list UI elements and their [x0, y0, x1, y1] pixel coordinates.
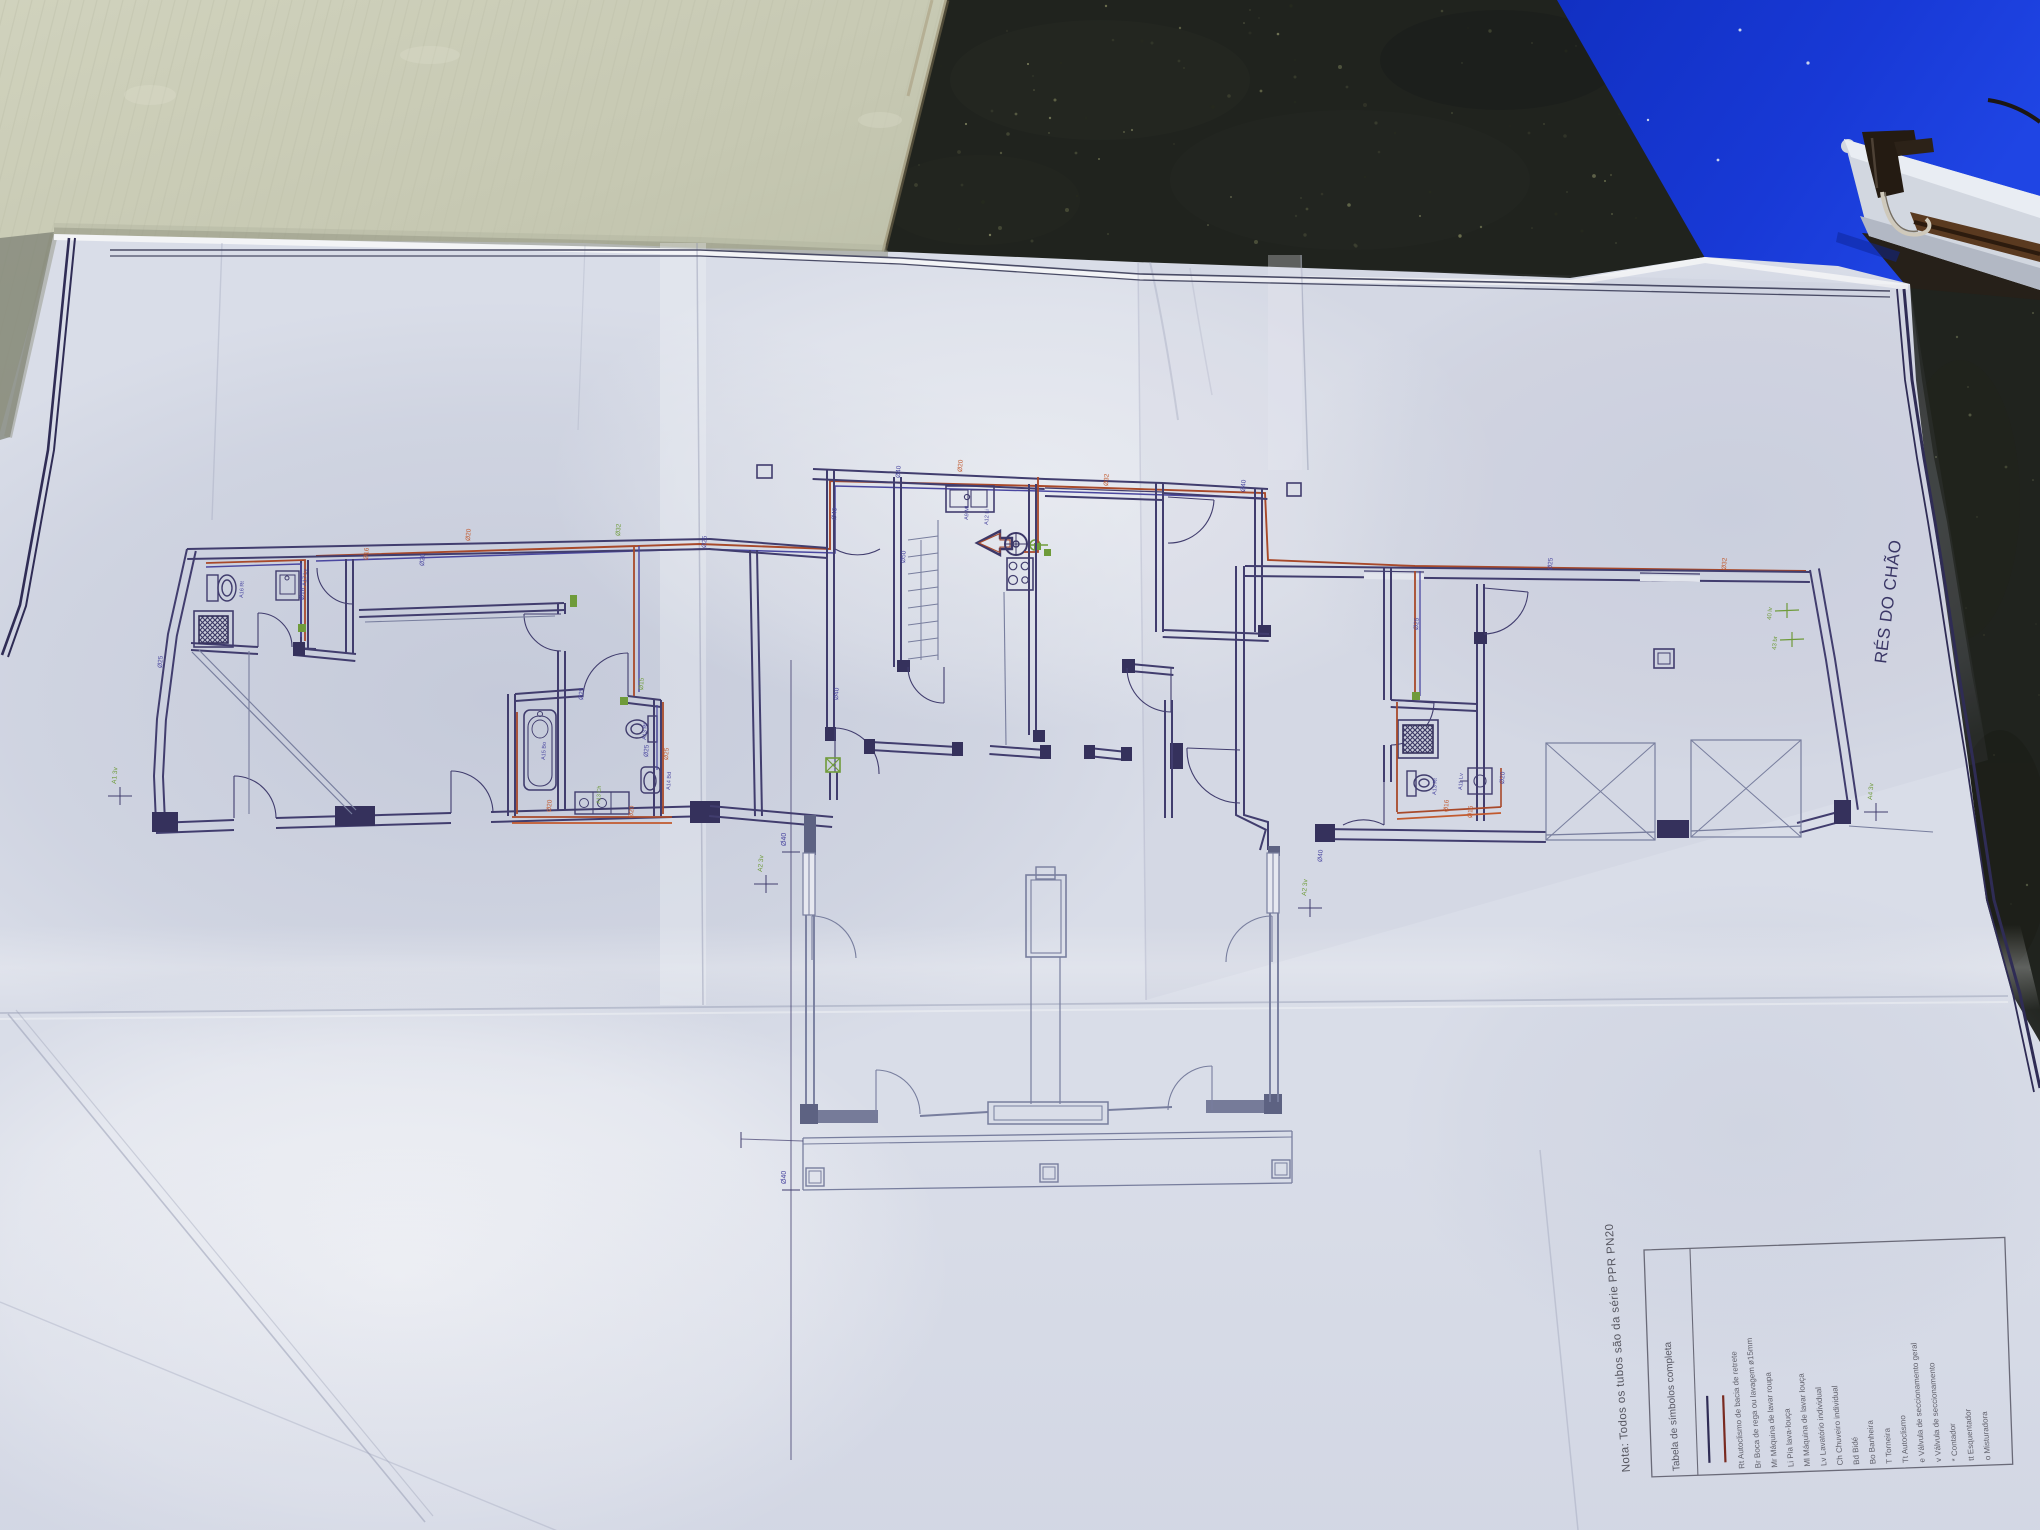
svg-text:A12 Li: A12 Li — [984, 509, 991, 525]
svg-text:A11 Lv: A11 Lv — [1458, 773, 1465, 790]
svg-text:Ø32: Ø32 — [615, 523, 623, 536]
svg-text:43 br: 43 br — [1772, 636, 1779, 650]
svg-text:Ø25: Ø25 — [1547, 557, 1555, 570]
svg-text:Ø20: Ø20 — [628, 805, 636, 818]
svg-text:A15 Bo: A15 Bo — [541, 742, 548, 760]
svg-text:A14 Bd: A14 Bd — [666, 772, 673, 790]
svg-text:Ø32: Ø32 — [1103, 473, 1111, 486]
svg-text:Ø20: Ø20 — [546, 799, 554, 812]
svg-text:Ø16: Ø16 — [1443, 799, 1451, 812]
svg-text:Ø20: Ø20 — [1499, 771, 1507, 784]
svg-text:Ø40: Ø40 — [1240, 479, 1248, 492]
svg-text:Ø25: Ø25 — [1413, 617, 1421, 630]
svg-text:Ø20: Ø20 — [465, 528, 473, 541]
svg-text:Ø40: Ø40 — [895, 465, 903, 478]
svg-text:Ø40: Ø40 — [781, 833, 788, 846]
svg-text:Ø15: Ø15 — [638, 677, 646, 690]
svg-text:Ø16: Ø16 — [1467, 805, 1475, 818]
svg-text:Ø25: Ø25 — [643, 744, 651, 757]
svg-text:A13 Rt: A13 Rt — [642, 723, 649, 741]
svg-text:Ø50: Ø50 — [900, 550, 908, 563]
svg-text:Ø40: Ø40 — [781, 1171, 788, 1184]
svg-text:Ø16: Ø16 — [363, 547, 371, 560]
svg-text:Ø25: Ø25 — [157, 655, 165, 668]
svg-text:Ø40: Ø40 — [831, 507, 839, 520]
svg-text:Ø40: Ø40 — [1317, 849, 1325, 862]
svg-text:A17 Lv: A17 Lv — [302, 568, 309, 586]
svg-text:Ø25: Ø25 — [701, 535, 709, 548]
svg-text:Ø16: Ø16 — [299, 587, 307, 600]
svg-text:40 lv: 40 lv — [1767, 607, 1774, 620]
svg-text:Ø40: Ø40 — [833, 687, 841, 700]
svg-text:Ø20: Ø20 — [957, 459, 965, 472]
svg-text:Ø25: Ø25 — [663, 747, 671, 760]
svg-text:A9 Ml: A9 Ml — [964, 506, 971, 520]
svg-text:A13 Rt: A13 Rt — [1432, 778, 1439, 796]
svg-text:A13 Ch: A13 Ch — [596, 785, 603, 804]
svg-text:Ø25: Ø25 — [578, 687, 586, 700]
svg-text:Ø20: Ø20 — [419, 553, 427, 566]
svg-text:Ø32: Ø32 — [1721, 557, 1729, 570]
svg-text:A16 Rt: A16 Rt — [239, 581, 246, 599]
